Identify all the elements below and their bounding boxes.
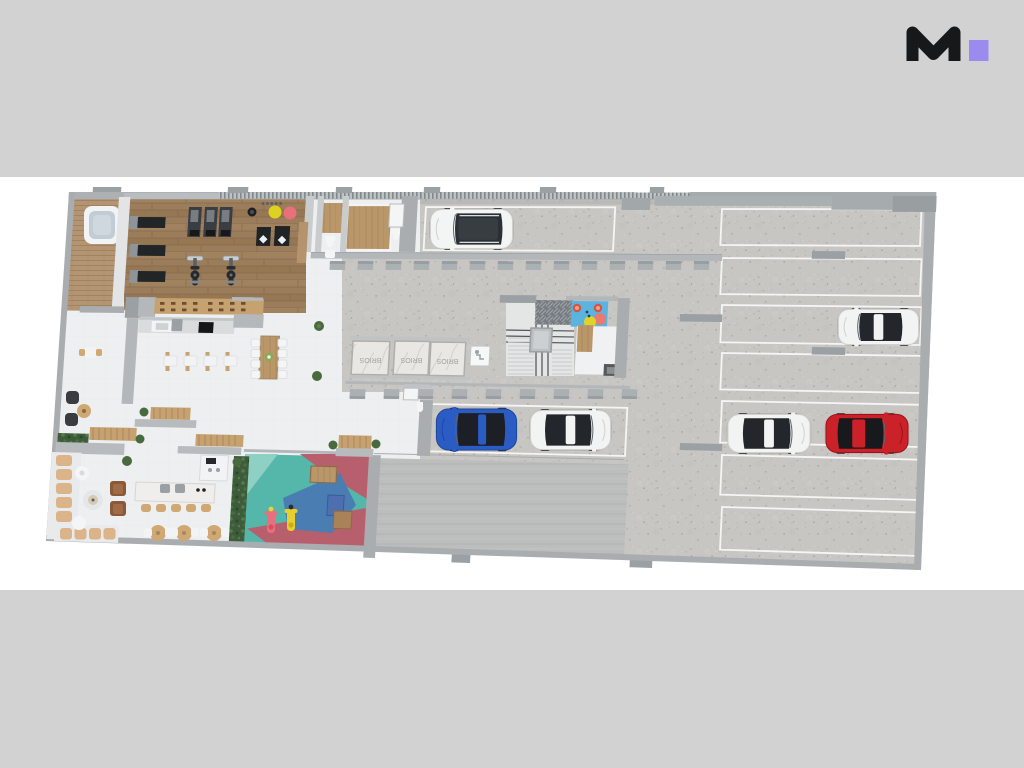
svg-text:BRIOS: BRIOS	[400, 356, 422, 363]
svg-text:BRIOS: BRIOS	[436, 357, 458, 364]
svg-text:BRIOS: BRIOS	[359, 356, 381, 363]
